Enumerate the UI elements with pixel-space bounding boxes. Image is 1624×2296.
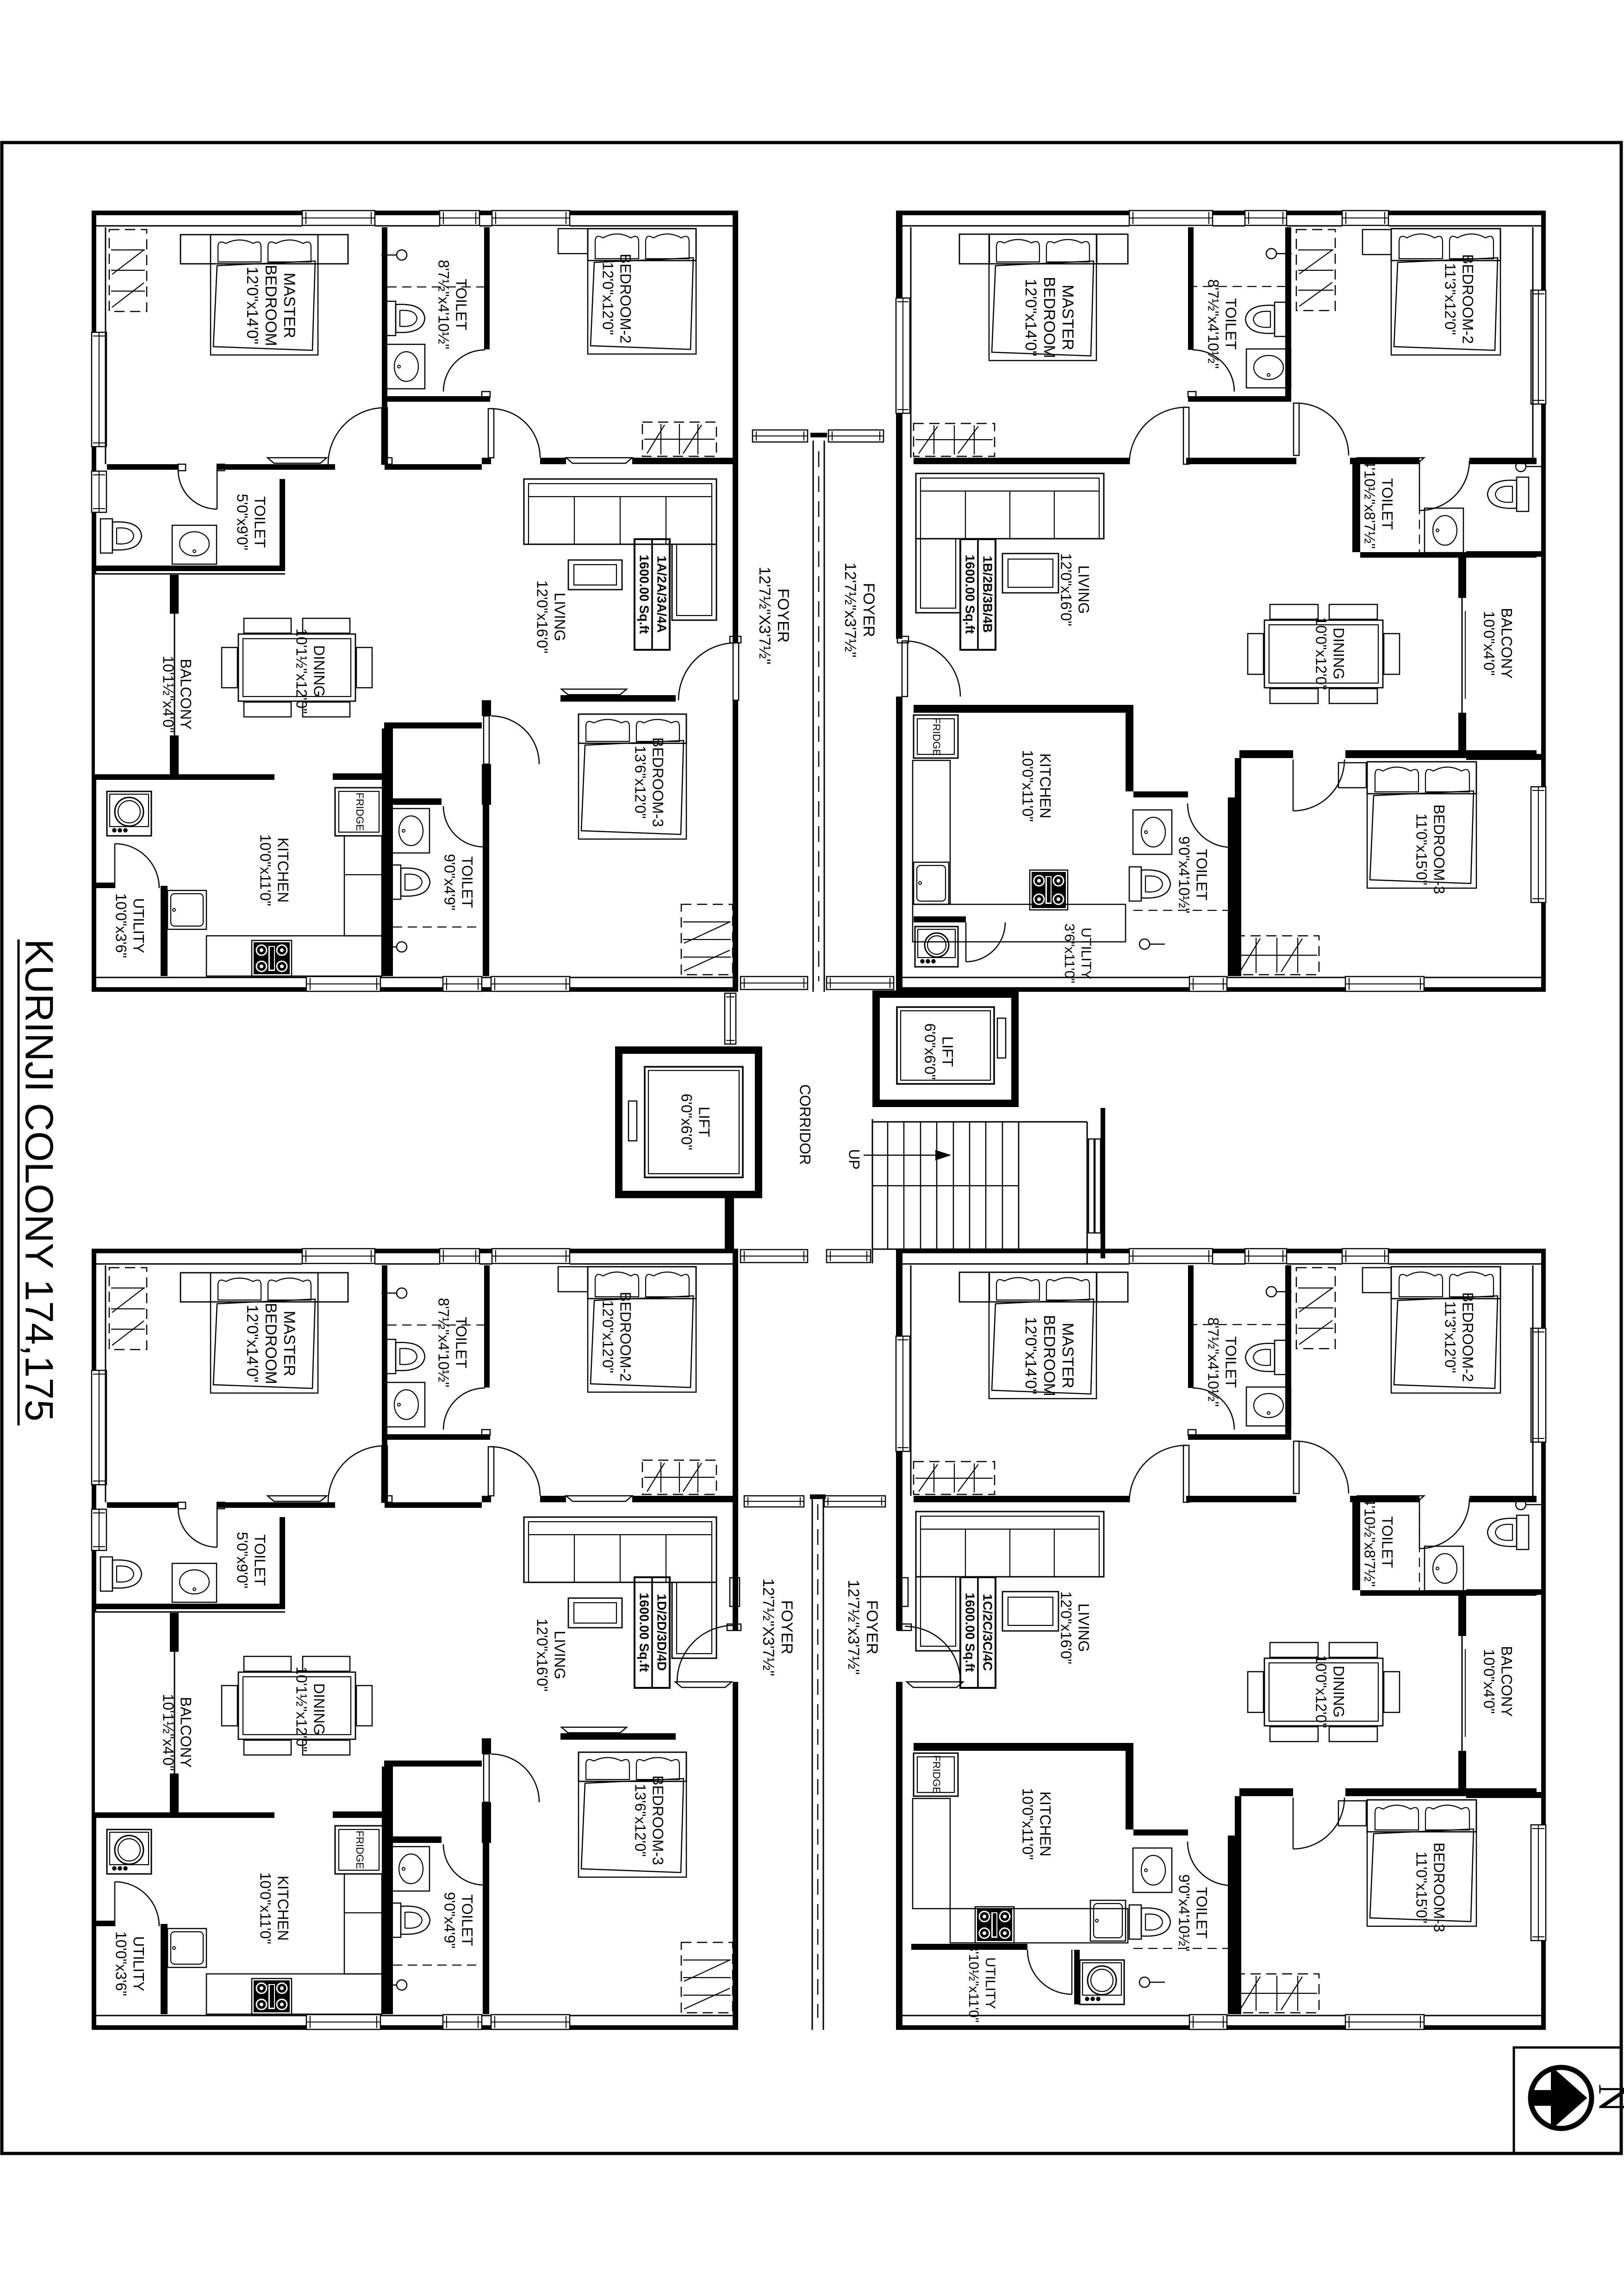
svg-text:FRIDGE: FRIDGE (354, 1830, 366, 1869)
svg-text:12'0"x16'0": 12'0"x16'0" (534, 580, 551, 653)
svg-text:6'0"x6'0": 6'0"x6'0" (678, 1094, 695, 1150)
svg-text:UTILITY: UTILITY (983, 1957, 998, 2009)
svg-text:BEDROOM-2: BEDROOM-2 (1460, 1292, 1476, 1382)
svg-text:KURINJI COLONY 174,175: KURINJI COLONY 174,175 (17, 939, 61, 1422)
svg-text:10'0"x11'0": 10'0"x11'0" (257, 834, 274, 906)
svg-text:MASTER: MASTER (280, 273, 298, 338)
svg-text:TOILET: TOILET (1379, 1516, 1396, 1568)
svg-text:BEDROOM: BEDROOM (262, 265, 280, 346)
svg-text:TOILET: TOILET (252, 496, 268, 548)
svg-text:10'0"x12'0": 10'0"x12'0" (1313, 617, 1330, 690)
svg-text:3'10½"x11'0": 3'10½"x11'0" (966, 1944, 981, 2023)
svg-text:12'0"x16'0": 12'0"x16'0" (1058, 553, 1075, 626)
svg-text:TOILET: TOILET (453, 1317, 470, 1368)
svg-text:BEDROOM: BEDROOM (1040, 1315, 1058, 1396)
svg-text:4'10½"x8'7½": 4'10½"x8'7½" (1362, 1497, 1378, 1587)
svg-text:LIVING: LIVING (1076, 566, 1092, 614)
svg-text:12'0"x14'0": 12'0"x14'0" (1022, 1317, 1039, 1394)
svg-text:10'1½"x4'0": 10'1½"x4'0" (160, 1694, 177, 1771)
svg-text:10'0"x11'0": 10'0"x11'0" (1020, 1788, 1036, 1860)
svg-text:TOILET: TOILET (1194, 1887, 1210, 1938)
svg-text:9'0"x4'10½": 9'0"x4'10½" (1176, 836, 1193, 914)
svg-text:10'0"x3'6": 10'0"x3'6" (113, 1931, 130, 1996)
svg-text:12'7½"X3'7½": 12'7½"X3'7½" (756, 566, 773, 664)
svg-text:10'1½"x4'0": 10'1½"x4'0" (160, 656, 177, 733)
svg-text:BALCONY: BALCONY (178, 659, 194, 730)
svg-text:TOILET: TOILET (1194, 849, 1210, 900)
svg-text:12'0"x14'0": 12'0"x14'0" (243, 1305, 261, 1382)
svg-text:LIFT: LIFT (696, 1107, 713, 1137)
svg-text:1D/2D/3D/4D: 1D/2D/3D/4D (655, 1594, 669, 1671)
svg-text:8'7½"x4'10½": 8'7½"x4'10½" (436, 1298, 452, 1387)
svg-text:12'7½"x3'7½": 12'7½"x3'7½" (841, 562, 859, 657)
svg-text:UTILITY: UTILITY (131, 898, 147, 953)
svg-text:FOYER: FOYER (774, 588, 792, 642)
svg-text:MASTER: MASTER (1059, 285, 1076, 350)
svg-text:LIVING: LIVING (552, 1631, 568, 1680)
svg-text:TOILET: TOILET (459, 856, 476, 908)
svg-text:6'0"x6'0": 6'0"x6'0" (922, 1023, 939, 1080)
svg-text:BALCONY: BALCONY (1499, 608, 1515, 679)
svg-text:BEDROOM: BEDROOM (1040, 277, 1058, 358)
svg-text:5'0"x9'0": 5'0"x9'0" (234, 494, 251, 550)
svg-text:10'1½"x12'0": 10'1½"x12'0" (293, 628, 310, 714)
svg-text:1B/2B/3B/4B: 1B/2B/3B/4B (981, 556, 995, 633)
svg-text:1600.00 Sq.ft: 1600.00 Sq.ft (963, 554, 977, 634)
svg-text:12'0"x16'0": 12'0"x16'0" (1058, 1591, 1075, 1664)
svg-text:11'3"x12'0": 11'3"x12'0" (1442, 1301, 1459, 1373)
svg-text:12'7½"X3'7½": 12'7½"X3'7½" (759, 1578, 777, 1676)
svg-text:12'0"x12'0": 12'0"x12'0" (600, 262, 616, 335)
svg-text:1A/2A/3A/4A: 1A/2A/3A/4A (655, 556, 669, 633)
svg-text:9'0"x4'10½": 9'0"x4'10½" (1176, 1874, 1193, 1952)
svg-text:FOYER: FOYER (860, 583, 877, 637)
svg-text:TOILET: TOILET (1379, 478, 1396, 529)
svg-text:BEDROOM-2: BEDROOM-2 (617, 254, 634, 343)
svg-text:BEDROOM-2: BEDROOM-2 (1460, 254, 1476, 344)
svg-text:TOILET: TOILET (1223, 1336, 1239, 1388)
svg-text:BEDROOM-3: BEDROOM-3 (650, 737, 666, 827)
svg-text:FRIDGE: FRIDGE (931, 1755, 942, 1793)
svg-text:FOYER: FOYER (863, 1600, 881, 1654)
svg-text:FRIDGE: FRIDGE (931, 717, 942, 756)
svg-text:12'7½"x3'7½": 12'7½"x3'7½" (845, 1580, 862, 1674)
svg-text:1600.00 Sq.ft: 1600.00 Sq.ft (963, 1593, 977, 1672)
svg-text:11'0"x15'0": 11'0"x15'0" (1413, 1851, 1430, 1923)
svg-text:TOILET: TOILET (459, 1894, 476, 1946)
svg-text:12'0"x16'0": 12'0"x16'0" (534, 1618, 551, 1692)
svg-text:LIVING: LIVING (1076, 1604, 1092, 1652)
svg-text:8'7½"x4'10½": 8'7½"x4'10½" (1205, 1317, 1222, 1406)
svg-text:DINING: DINING (1331, 1666, 1347, 1717)
svg-text:BEDROOM: BEDROOM (262, 1303, 280, 1384)
svg-text:5'0"x9'0": 5'0"x9'0" (234, 1532, 251, 1588)
svg-text:11'3"x12'0": 11'3"x12'0" (1442, 263, 1459, 335)
svg-text:BALCONY: BALCONY (1499, 1646, 1515, 1717)
svg-text:UTILITY: UTILITY (131, 1936, 147, 1991)
svg-text:3'6"x11'0": 3'6"x11'0" (1062, 924, 1077, 983)
svg-text:10'0"x3'6": 10'0"x3'6" (113, 893, 130, 958)
svg-text:TOILET: TOILET (453, 279, 470, 330)
svg-text:12'0"x14'0": 12'0"x14'0" (1022, 279, 1039, 356)
svg-text:KITCHEN: KITCHEN (1037, 1792, 1054, 1856)
svg-text:DINING: DINING (311, 645, 328, 697)
svg-text:12'0"x12'0": 12'0"x12'0" (600, 1300, 616, 1373)
svg-text:BEDROOM-3: BEDROOM-3 (650, 1775, 666, 1865)
svg-text:4'10½"x8'7½": 4'10½"x8'7½" (1362, 459, 1378, 548)
svg-text:1C/2C/3C/4C: 1C/2C/3C/4C (981, 1594, 995, 1671)
svg-text:TOILET: TOILET (1223, 298, 1239, 349)
svg-text:CORRIDOR: CORRIDOR (797, 1084, 814, 1165)
svg-text:FRIDGE: FRIDGE (354, 792, 366, 831)
svg-text:LIVING: LIVING (552, 593, 568, 641)
svg-text:13'6"x12'0": 13'6"x12'0" (632, 746, 649, 819)
svg-text:KITCHEN: KITCHEN (275, 838, 292, 902)
svg-text:8'7½"x4'10½": 8'7½"x4'10½" (436, 260, 452, 349)
svg-text:1600.00 Sq.ft: 1600.00 Sq.ft (637, 1593, 652, 1672)
svg-text:UTILITY: UTILITY (1078, 927, 1094, 979)
svg-text:10'0"x11'0": 10'0"x11'0" (257, 1872, 274, 1944)
svg-text:10'0"x11'0": 10'0"x11'0" (1020, 750, 1036, 821)
svg-text:BEDROOM-3: BEDROOM-3 (1431, 804, 1448, 894)
svg-text:N: N (1590, 2084, 1624, 2112)
svg-text:BEDROOM-3: BEDROOM-3 (1431, 1842, 1448, 1932)
svg-text:DINING: DINING (311, 1683, 328, 1735)
svg-text:13'6"x12'0": 13'6"x12'0" (632, 1784, 649, 1857)
svg-text:10'0"x12'0": 10'0"x12'0" (1313, 1655, 1330, 1728)
svg-text:MASTER: MASTER (280, 1311, 298, 1376)
svg-text:MASTER: MASTER (1059, 1323, 1076, 1388)
svg-text:TOILET: TOILET (252, 1534, 268, 1586)
svg-text:LIFT: LIFT (940, 1036, 956, 1067)
svg-text:9'0"x4'9": 9'0"x4'9" (442, 1892, 458, 1948)
svg-text:UP: UP (846, 1149, 863, 1170)
svg-text:12'0"x14'0": 12'0"x14'0" (243, 267, 261, 344)
svg-text:10'0"x4'0": 10'0"x4'0" (1481, 611, 1498, 676)
svg-text:BEDROOM-2: BEDROOM-2 (617, 1292, 634, 1381)
svg-text:KITCHEN: KITCHEN (1037, 753, 1054, 818)
svg-text:11'0"x15'0": 11'0"x15'0" (1413, 813, 1430, 885)
svg-text:9'0"x4'9": 9'0"x4'9" (442, 854, 458, 910)
svg-text:KITCHEN: KITCHEN (275, 1876, 292, 1941)
svg-text:BALCONY: BALCONY (178, 1697, 194, 1768)
svg-text:DINING: DINING (1331, 628, 1347, 679)
svg-text:1600.00 Sq.ft: 1600.00 Sq.ft (637, 554, 652, 634)
svg-text:FOYER: FOYER (778, 1600, 796, 1654)
svg-text:8'7½"x4'10½": 8'7½"x4'10½" (1205, 279, 1222, 368)
svg-text:10'1½"x12'0": 10'1½"x12'0" (293, 1667, 310, 1752)
svg-text:10'0"x4'0": 10'0"x4'0" (1481, 1649, 1498, 1714)
